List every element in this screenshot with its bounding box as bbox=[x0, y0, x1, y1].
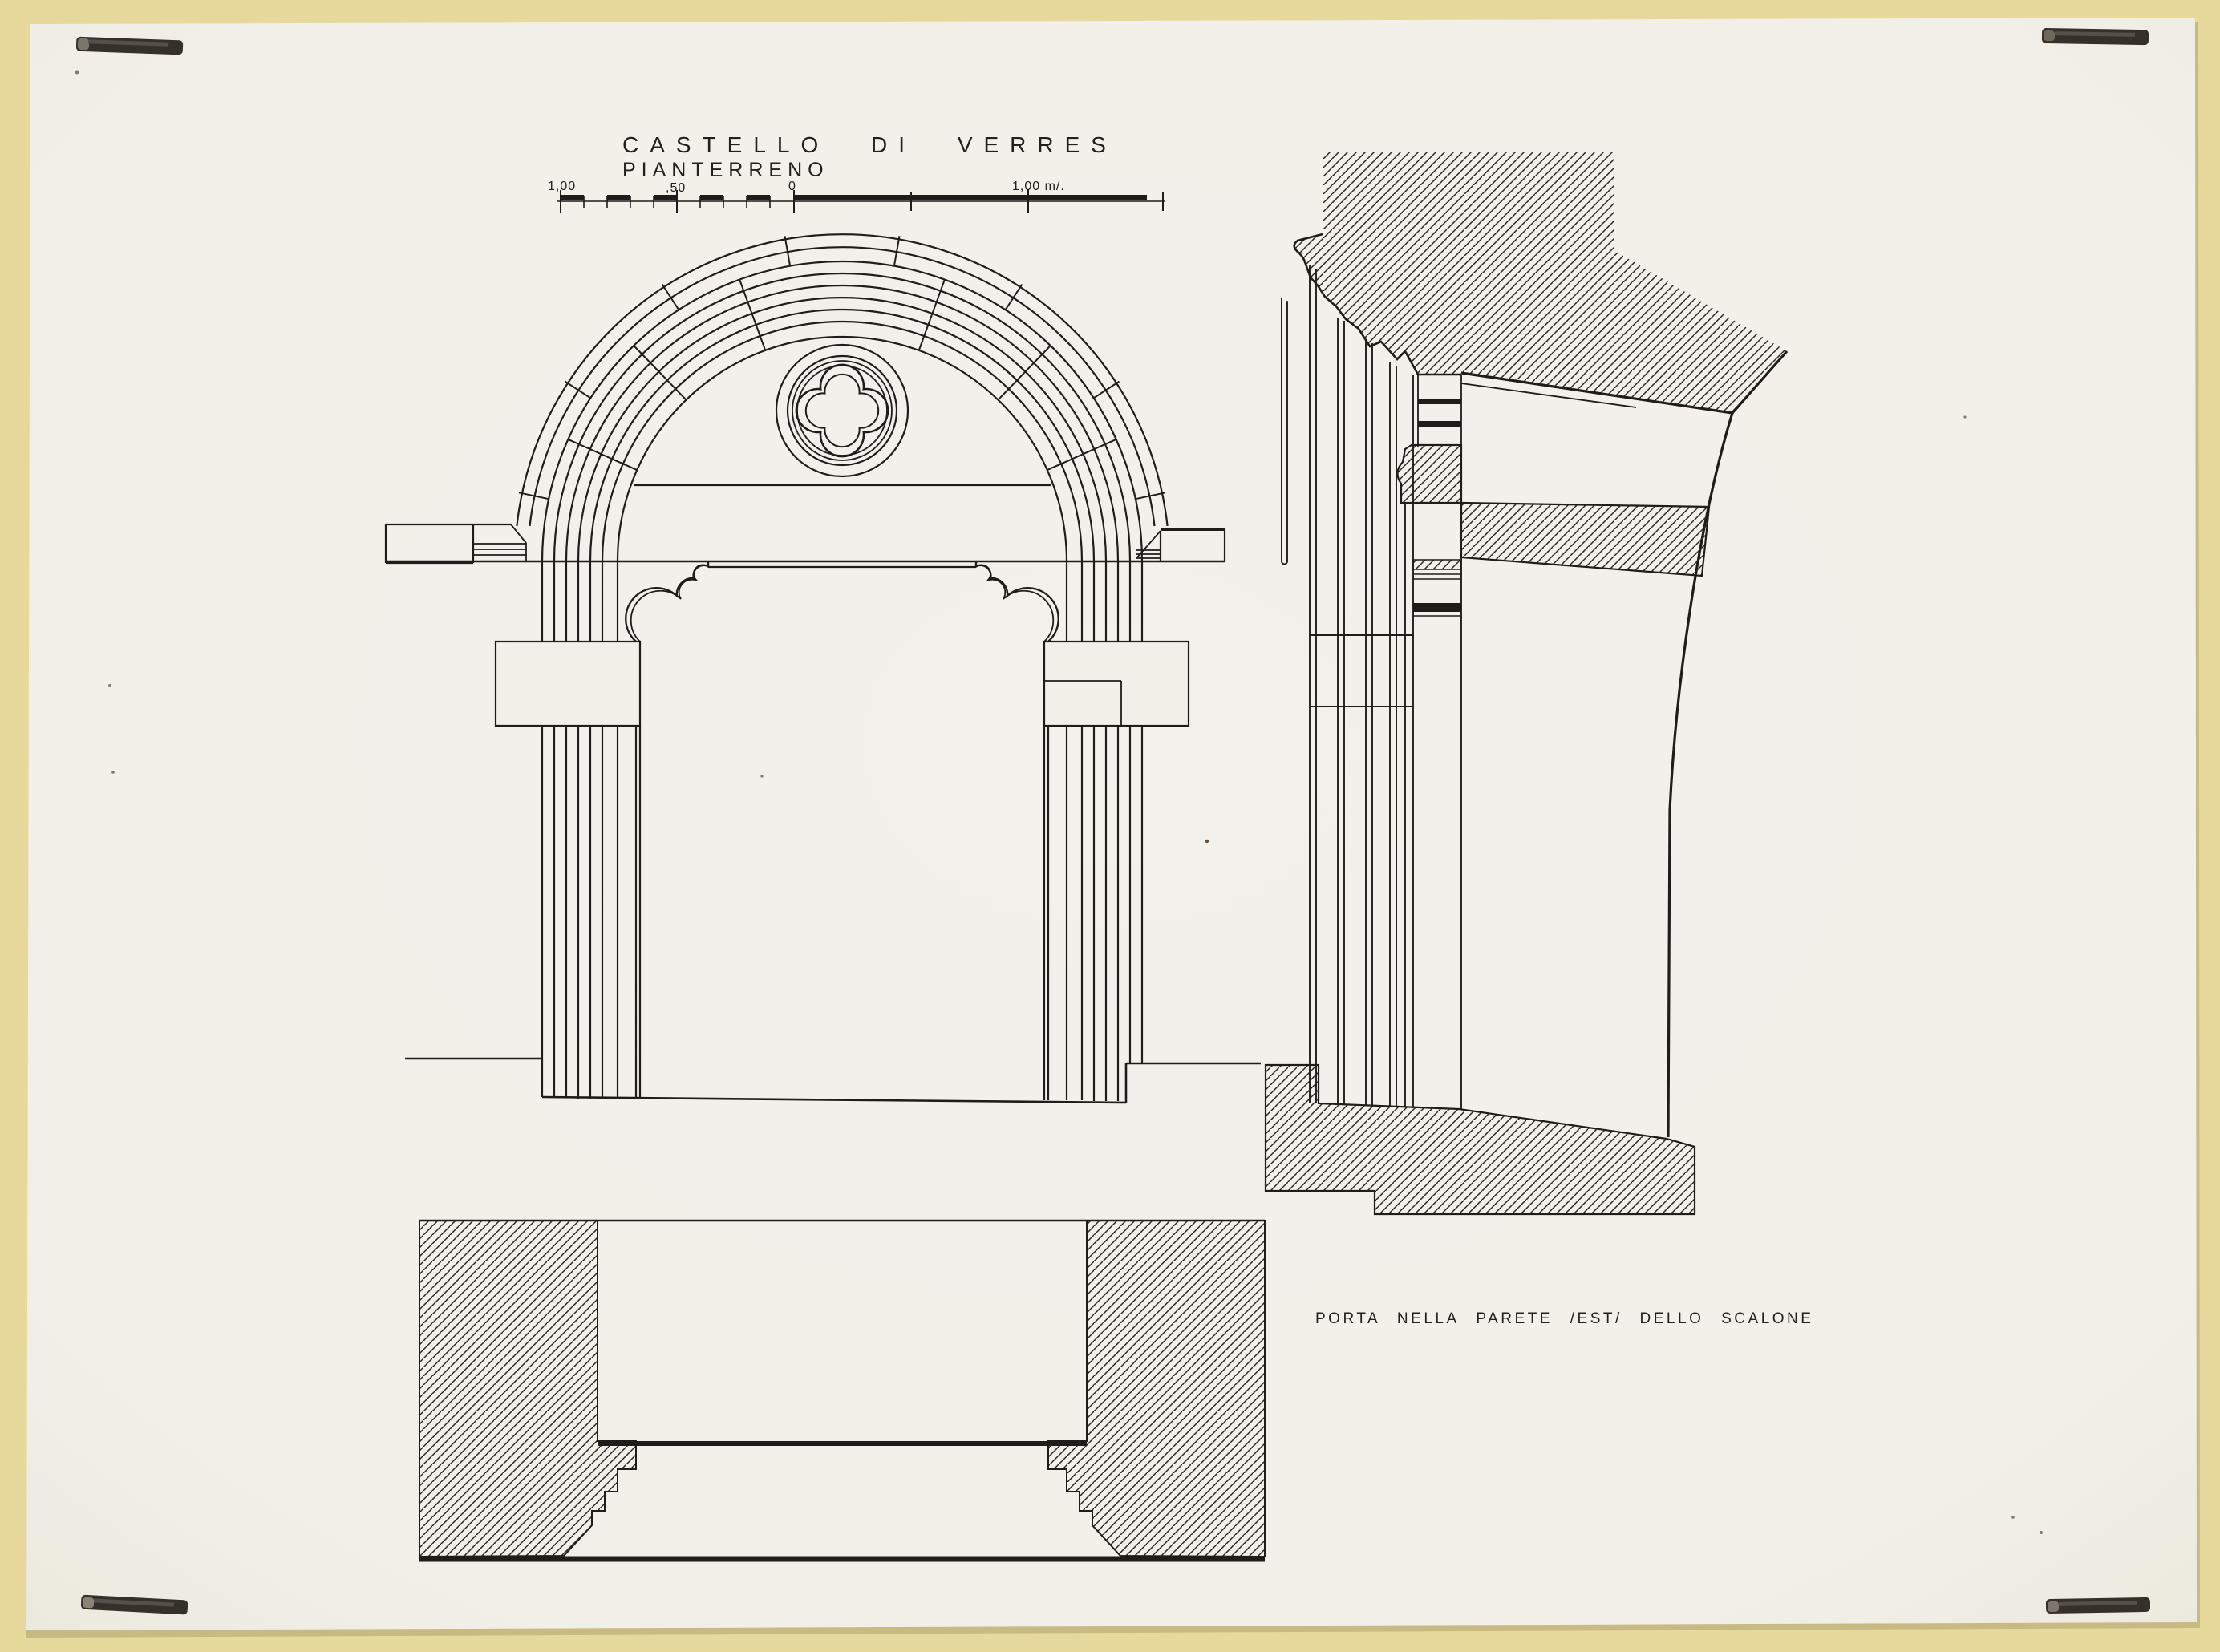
scanned-drawing-scene: CASTELLO DI VERRES PIANTERRENO 1,00 ,50 … bbox=[0, 0, 2220, 1652]
staple-top-right bbox=[2042, 28, 2149, 45]
staple-bottom-right bbox=[2046, 1597, 2150, 1614]
drawing-caption: PORTA NELLA PARETE /EST/ DELLO SCALONE bbox=[1315, 1310, 1813, 1328]
drawing-title: CASTELLO DI VERRES bbox=[622, 132, 1117, 158]
drawing-canvas bbox=[0, 0, 2220, 1652]
drawing-subtitle: PIANTERRENO bbox=[622, 159, 829, 182]
section-impost-cut bbox=[1397, 445, 1461, 503]
scale-label-half: ,50 bbox=[666, 181, 686, 196]
scale-label-left: 1,00 bbox=[548, 180, 576, 194]
scale-label-zero: 0 bbox=[788, 180, 796, 194]
scale-label-onemeter: 1,00 m/. bbox=[1012, 180, 1065, 194]
